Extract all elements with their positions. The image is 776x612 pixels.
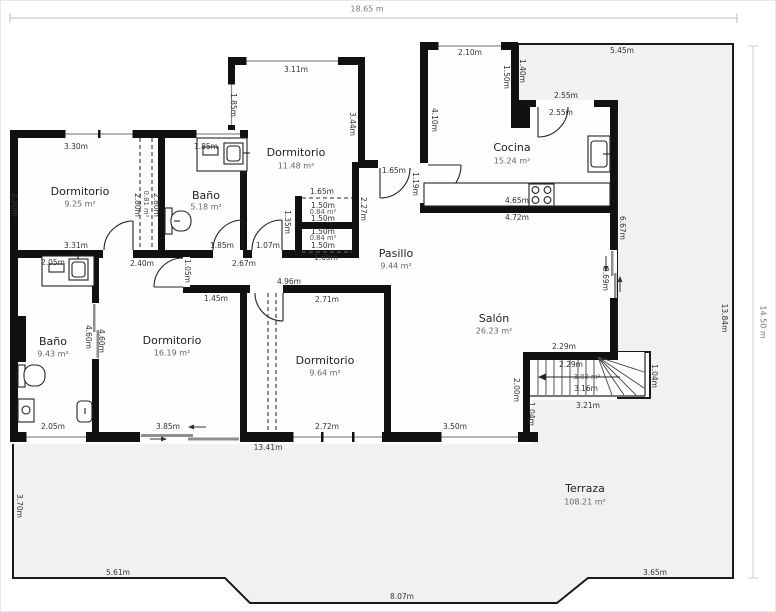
window <box>194 130 243 138</box>
window <box>63 130 135 138</box>
dim-label: 3.65m <box>643 568 667 577</box>
dim-label: 2.05m <box>41 422 65 431</box>
dim-label: 0.81 m² <box>142 191 150 218</box>
dim-label: 1.40m <box>518 59 527 83</box>
dim-label: 3.21m <box>576 401 600 410</box>
dim-label: 6.67m <box>618 216 627 240</box>
room-area: 9.64 m² <box>309 369 340 378</box>
dim-label: 1.65m <box>314 253 338 262</box>
wall-sink <box>77 401 92 422</box>
dim-label: 1.35m <box>283 210 292 234</box>
room-area: 9.43 m² <box>37 350 68 359</box>
dim-label: 2.80m <box>133 193 142 217</box>
dim-label: 13.84m <box>720 304 729 333</box>
dim-label: 1.07m <box>256 241 280 250</box>
room-area: 5.18 m² <box>190 203 221 212</box>
room-area: 108.21 m² <box>564 498 606 507</box>
dim-label: 1.65m <box>382 166 406 175</box>
dim-label: 4.60m <box>84 325 93 349</box>
room-area: 16.19 m² <box>154 349 190 358</box>
dim-label: 1.85m <box>210 241 234 250</box>
dim-label: 3.16m <box>574 384 598 393</box>
dim-label: 1.50m <box>502 65 511 89</box>
dim-label: 13.41m <box>254 443 283 452</box>
dim-label: 4.96m <box>277 277 301 286</box>
shower-column <box>17 316 26 362</box>
dim-label: 5.45m <box>610 46 634 55</box>
dim-label: 2.00m <box>512 378 521 402</box>
room-name: Baño <box>192 189 220 202</box>
dim-label: 2.72m <box>315 422 339 431</box>
room-area: 15.24 m² <box>494 157 530 166</box>
dim-label: 2.55m <box>549 108 573 117</box>
dim-label: 2.10m <box>458 48 482 57</box>
dim-label: 1.50m <box>311 241 335 250</box>
width-ruler-label: 18.65 m <box>350 5 383 14</box>
dim-label: 2.80m <box>10 193 19 217</box>
window <box>439 432 521 442</box>
window <box>291 432 385 442</box>
dim-label: 1.45m <box>204 294 228 303</box>
dim-label: 1.19m <box>411 172 420 196</box>
dim-label: 2.27m <box>359 197 368 221</box>
dim-label: 2.71m <box>315 295 339 304</box>
bidet <box>18 399 34 422</box>
dim-label: 3.69m <box>601 267 610 291</box>
dim-label: 3.31m <box>64 241 88 250</box>
dim-label: 5.61m <box>106 568 130 577</box>
room-name: Pasillo <box>379 247 414 260</box>
height-ruler-label: 14.50 m <box>759 305 768 338</box>
dim-label: 2.80m <box>152 193 161 217</box>
dim-label: 2.40m <box>130 259 154 268</box>
dim-label: 1.85m <box>194 142 218 151</box>
dim-label: 4.65m <box>505 196 529 205</box>
room-name: Dormitorio <box>143 334 202 347</box>
dim-label: 1.65m <box>310 187 334 196</box>
room-name: Cocina <box>493 141 530 154</box>
dim-label: 1.50m <box>311 214 335 223</box>
dim-label: 4.72m <box>505 213 529 222</box>
stove <box>529 184 554 206</box>
room-name: Dormitorio <box>296 354 355 367</box>
dim-label: 1.85m <box>229 93 238 117</box>
window <box>244 57 341 65</box>
dim-label: 8.07m <box>390 592 414 601</box>
room-area: 11.48 m² <box>278 162 314 171</box>
dim-label: 3.70m <box>15 494 24 518</box>
toilet <box>18 365 45 387</box>
room-area: 9.44 m² <box>380 262 411 271</box>
room-name: Baño <box>39 335 67 348</box>
dim-label: 2.67m <box>232 259 256 268</box>
floorplan-canvas: 18.65 m 14.50 m <box>0 0 776 612</box>
dim-label: 1.05m <box>183 259 192 283</box>
dim-label: 4.10m <box>430 108 439 132</box>
kitchen-sink <box>588 136 610 172</box>
dim-label: 2.55m <box>554 91 578 100</box>
dim-label: 3.44m <box>348 112 357 136</box>
dim-label: 4.60m <box>97 329 106 353</box>
dim-label: 1.04m <box>527 402 536 426</box>
dim-label: 3.30m <box>64 142 88 151</box>
dim-label: 1.04m <box>650 364 659 388</box>
dim-label: 3.03 m² <box>574 373 601 381</box>
dim-label: 3.85m <box>156 422 180 431</box>
dim-label: 3.50m <box>443 422 467 431</box>
dim-label: 3.11m <box>284 65 308 74</box>
window <box>24 432 89 442</box>
room-name: Dormitorio <box>267 146 326 159</box>
room-area: 9.25 m² <box>64 200 95 209</box>
room-name: Terraza <box>564 482 605 495</box>
dim-label: 2.29m <box>552 342 576 351</box>
room-area: 26.23 m² <box>476 327 512 336</box>
dim-label: 2.29m <box>559 360 583 369</box>
room-name: Salón <box>479 312 510 325</box>
dim-label: 2.05m <box>41 258 65 267</box>
room-name: Dormitorio <box>51 185 110 198</box>
